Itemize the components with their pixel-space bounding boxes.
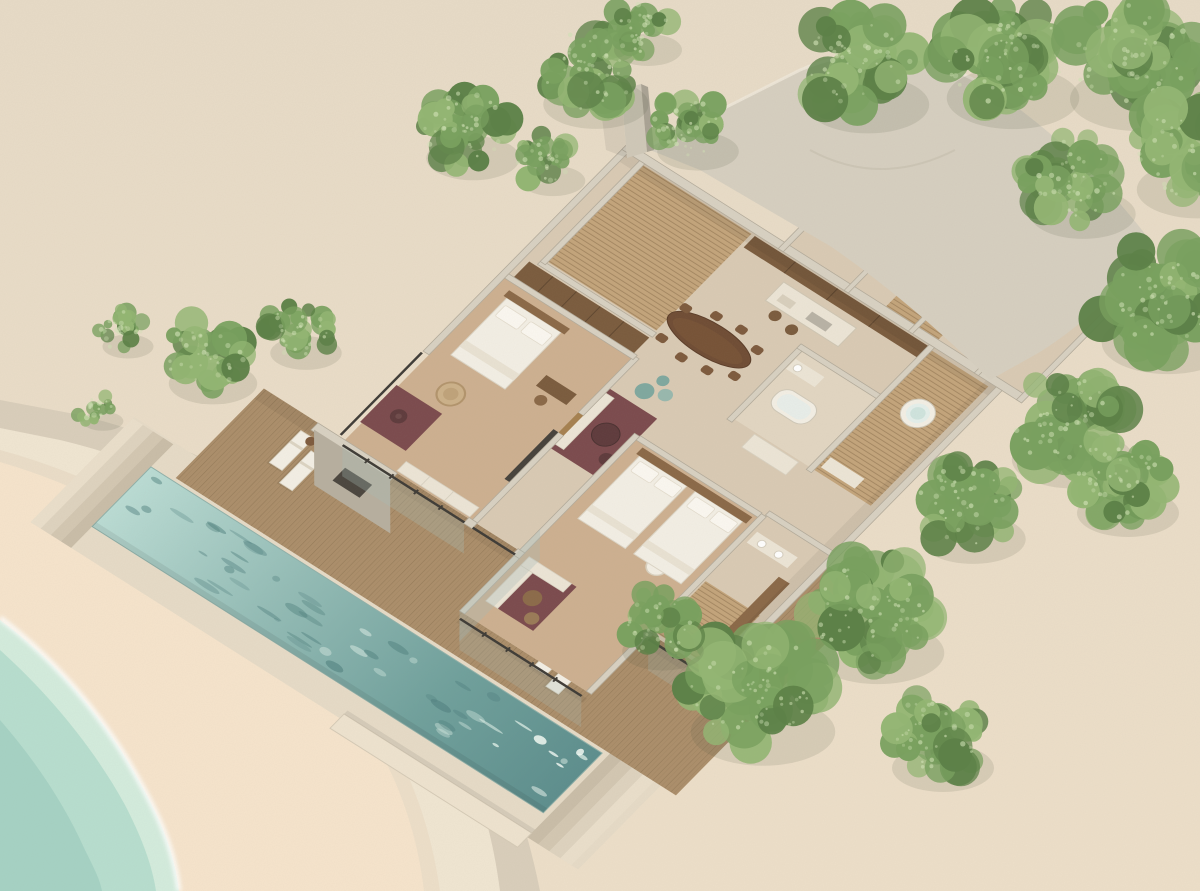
tree-speckle — [929, 764, 933, 768]
tree-speckle — [1121, 273, 1124, 276]
tree-speckle — [544, 177, 547, 180]
tree-speckle — [1068, 208, 1071, 211]
tree-speckle — [906, 598, 910, 602]
tree-speckle — [915, 703, 918, 706]
tree-speckle — [1156, 118, 1158, 120]
tree-speckle — [971, 471, 976, 476]
tree-speckle — [902, 734, 904, 736]
tree-foliage — [1103, 501, 1125, 523]
tree-speckle — [1053, 449, 1057, 453]
tree-speckle — [832, 50, 836, 54]
tree-speckle — [795, 698, 799, 702]
tree-speckle — [427, 142, 432, 147]
tree-speckle — [765, 708, 767, 710]
tree-speckle — [1036, 173, 1041, 178]
tree-speckle — [896, 738, 899, 741]
tree-speckle — [1005, 41, 1007, 43]
tree-speckle — [462, 124, 465, 127]
tree-speckle — [862, 92, 865, 95]
tree-speckle — [894, 623, 898, 627]
tree-speckle — [192, 335, 196, 339]
tree-speckle — [921, 761, 924, 764]
tree-speckle — [627, 624, 629, 626]
tree-speckle — [197, 353, 199, 355]
tree-speckle — [921, 714, 924, 717]
tree-foliage — [1149, 457, 1173, 481]
tree-speckle — [878, 49, 882, 53]
tree-speckle — [1143, 21, 1147, 25]
tree-speckle — [957, 512, 962, 517]
tree-speckle — [813, 40, 818, 45]
tree-speckle — [690, 104, 692, 106]
tree-speckle — [1083, 418, 1088, 423]
tree-speckle — [292, 331, 297, 336]
tree-speckle — [945, 535, 949, 539]
tree-speckle — [920, 734, 923, 737]
tree-speckle — [307, 319, 310, 322]
tree-speckle — [974, 512, 979, 517]
tree-speckle — [563, 69, 566, 72]
tree-speckle — [677, 641, 681, 645]
tree-speckle — [318, 317, 323, 322]
tree-speckle — [175, 331, 180, 336]
tree-speckle — [915, 723, 917, 725]
tree-speckle — [536, 143, 540, 147]
tree-speckle — [862, 62, 864, 64]
tree-speckle — [1009, 67, 1012, 70]
tree-speckle — [1131, 313, 1135, 317]
tree-speckle — [886, 54, 891, 59]
tree-speckle — [1075, 214, 1077, 216]
tree-speckle — [835, 53, 838, 56]
tree-foliage — [221, 354, 249, 382]
tree-speckle — [1026, 439, 1029, 442]
tree-speckle — [930, 702, 934, 706]
tree-speckle — [647, 629, 650, 632]
tree-speckle — [555, 159, 559, 163]
tree-speckle — [84, 415, 89, 420]
tree-speckle — [633, 631, 638, 636]
tree-foliage — [988, 494, 1012, 518]
tree-speckle — [1014, 428, 1019, 433]
tree-foliage — [568, 38, 598, 68]
tree-speckle — [876, 63, 878, 65]
tree-speckle — [1049, 173, 1054, 178]
tree-speckle — [690, 685, 693, 688]
tree-speckle — [1190, 144, 1194, 148]
tree-speckle — [1162, 119, 1166, 123]
tree-speckle — [1147, 466, 1151, 470]
tree-foliage — [1069, 210, 1090, 231]
tree-speckle — [547, 153, 551, 157]
scene-canvas — [0, 0, 1200, 891]
tree-speckle — [189, 365, 192, 368]
tree-speckle — [538, 151, 542, 155]
tree-speckle — [886, 50, 890, 54]
tree-speckle — [869, 619, 873, 623]
tree-speckle — [634, 47, 637, 50]
tree-speckle — [1042, 422, 1047, 427]
tree-foliage — [567, 71, 605, 109]
tree-speckle — [1065, 161, 1068, 164]
tree-speckle — [446, 95, 452, 101]
tree-speckle — [842, 568, 847, 573]
tree-speckle — [666, 126, 669, 129]
tree-speckle — [896, 79, 901, 84]
tree-speckle — [579, 60, 582, 63]
tree-speckle — [1156, 81, 1161, 86]
tree-speckle — [707, 121, 710, 124]
tree-speckle — [1143, 307, 1149, 313]
tree-speckle — [641, 637, 643, 639]
tree-speckle — [202, 350, 207, 355]
tree-speckle — [1177, 263, 1180, 266]
tree-speckle — [847, 62, 849, 64]
tree-speckle — [628, 620, 631, 623]
tree-speckle — [462, 130, 465, 133]
tree-speckle — [945, 517, 947, 519]
tree-speckle — [1058, 189, 1062, 193]
tree-speckle — [1094, 482, 1098, 486]
tree-speckle — [988, 27, 993, 32]
tree-speckle — [1063, 426, 1068, 431]
tree-speckle — [1172, 266, 1175, 269]
tree-speckle — [587, 63, 591, 67]
tree-speckle — [1103, 182, 1107, 186]
tree-speckle — [874, 49, 879, 54]
tree-speckle — [110, 405, 113, 408]
tree-speckle — [944, 735, 947, 738]
tree-speckle — [283, 340, 286, 343]
tree-speckle — [1108, 64, 1113, 69]
tree-speckle — [168, 360, 171, 363]
tree-speckle — [554, 178, 556, 180]
tree-speckle — [540, 139, 543, 142]
tree-speckle — [523, 157, 528, 162]
tree-foliage — [1117, 232, 1155, 270]
tree-foliage — [1113, 265, 1149, 301]
tree-speckle — [476, 155, 479, 158]
tree-speckle — [799, 696, 802, 699]
tree-speckle — [1080, 199, 1083, 202]
tree-speckle — [1163, 61, 1167, 65]
tree-speckle — [841, 45, 844, 48]
tree-speckle — [1032, 44, 1037, 49]
tree-speckle — [567, 47, 571, 51]
tree-speckle — [801, 710, 804, 713]
tree-speckle — [1083, 47, 1087, 51]
tree-speckle — [489, 101, 493, 105]
tree-speckle — [1113, 29, 1117, 33]
tree-speckle — [994, 499, 998, 503]
tree-speckle — [1038, 440, 1042, 444]
tree-speckle — [1087, 411, 1089, 413]
tree-speckle — [184, 343, 189, 348]
tree-speckle — [563, 169, 568, 174]
tree-speckle — [589, 40, 591, 42]
tree-speckle — [919, 490, 924, 495]
tree-speckle — [869, 605, 874, 610]
tree-speckle — [1074, 420, 1079, 425]
tree-speckle — [1160, 319, 1165, 324]
tree-speckle — [872, 635, 875, 638]
tree-speckle — [134, 330, 139, 335]
tree-speckle — [1065, 422, 1069, 426]
tree-speckle — [1069, 152, 1073, 156]
tree-speckle — [1033, 82, 1037, 86]
tree-speckle — [858, 609, 863, 614]
tree-speckle — [1170, 33, 1173, 36]
tree-speckle — [838, 629, 842, 633]
tree-speckle — [700, 101, 705, 106]
tree-speckle — [1157, 308, 1160, 311]
tree-speckle — [908, 746, 912, 750]
tree-speckle — [761, 697, 764, 700]
tree-speckle — [604, 39, 608, 43]
tree-speckle — [823, 77, 828, 82]
tree-speckle — [753, 657, 758, 662]
aerial-villa-rendering — [0, 0, 1200, 891]
tree-speckle — [119, 332, 123, 336]
tree-speckle — [711, 661, 716, 666]
tree-speckle — [863, 58, 868, 63]
tree-speckle — [1160, 295, 1164, 299]
tree-speckle — [829, 46, 833, 50]
tree-speckle — [447, 106, 451, 110]
tree-speckle — [474, 93, 480, 99]
tree-speckle — [1000, 40, 1002, 42]
tree-speckle — [684, 629, 686, 631]
tree-speckle — [877, 598, 879, 600]
tree-speckle — [122, 310, 126, 314]
tree-speckle — [646, 14, 649, 17]
tree-speckle — [953, 480, 956, 483]
tree-speckle — [1127, 307, 1132, 312]
tree-speckle — [1109, 475, 1112, 478]
tree-speckle — [829, 638, 833, 642]
tree-speckle — [741, 720, 743, 722]
tree-speckle — [656, 637, 661, 642]
tree-speckle — [1018, 87, 1023, 92]
tree-speckle — [1172, 144, 1177, 149]
tree-foliage — [1148, 286, 1191, 329]
tree-speckle — [91, 398, 94, 401]
tree-speckle — [1170, 126, 1173, 129]
tree-speckle — [225, 343, 230, 348]
tree-speckle — [918, 740, 922, 744]
tree-speckle — [563, 57, 566, 60]
tree-speckle — [444, 118, 447, 121]
tree-speckle — [922, 610, 925, 613]
tree-speckle — [1073, 174, 1077, 178]
tree-speckle — [213, 354, 218, 359]
tree-speckle — [456, 92, 460, 96]
tree-foliage — [1089, 150, 1108, 169]
tree-speckle — [694, 125, 699, 130]
tree-speckle — [1168, 281, 1171, 284]
tree-speckle — [658, 602, 661, 605]
tree-speckle — [1160, 79, 1162, 81]
tree-speckle — [1139, 286, 1141, 288]
tree-speckle — [871, 654, 874, 657]
tree-speckle — [1109, 170, 1114, 175]
tree-speckle — [965, 712, 970, 717]
tree-speckle — [103, 332, 105, 334]
tree-speckle — [918, 722, 921, 725]
tree-speckle — [598, 73, 601, 76]
tree-speckle — [1097, 471, 1100, 474]
tree-speckle — [474, 122, 479, 127]
tree-speckle — [591, 53, 595, 57]
tree-speckle — [584, 67, 589, 72]
tree-speckle — [939, 479, 943, 483]
tree-speckle — [956, 528, 960, 532]
tree-speckle — [617, 72, 620, 75]
tree-speckle — [1030, 96, 1033, 99]
tree-speckle — [1094, 448, 1097, 451]
tree-speckle — [1038, 423, 1042, 427]
tree-speckle — [954, 490, 958, 494]
tree-speckle — [694, 101, 698, 105]
tree-speckle — [216, 372, 221, 377]
tree-speckle — [890, 38, 893, 41]
tree-speckle — [847, 50, 850, 53]
tree-speckle — [842, 640, 845, 643]
tree-speckle — [716, 685, 721, 690]
tree-speckle — [848, 626, 850, 628]
tree-speckle — [636, 2, 641, 7]
tree-speckle — [930, 758, 935, 763]
tree-speckle — [1048, 439, 1053, 444]
tree-foliage — [540, 57, 566, 83]
tree-speckle — [1123, 56, 1127, 60]
tree-speckle — [1156, 321, 1159, 324]
tree-speckle — [604, 92, 608, 96]
tree-speckle — [952, 724, 957, 729]
tree-speckle — [1113, 18, 1118, 23]
tree-speckle — [661, 126, 666, 131]
tree-speckle — [1072, 396, 1074, 398]
tree-speckle — [830, 58, 835, 63]
tree-speckle — [667, 139, 671, 143]
tree-speckle — [470, 127, 474, 131]
tree-speckle — [695, 703, 698, 706]
tree-speckle — [1088, 481, 1092, 485]
tree-speckle — [1180, 120, 1182, 122]
tree-speckle — [1004, 49, 1008, 53]
tree-speckle — [468, 143, 471, 146]
tree-speckle — [1153, 284, 1157, 288]
tree-speckle — [934, 494, 939, 499]
tree-speckle — [1119, 302, 1124, 307]
tree-speckle — [1087, 67, 1092, 72]
tree-speckle — [1170, 320, 1173, 323]
tree-foliage — [703, 719, 729, 745]
tree-speckle — [1019, 74, 1023, 78]
tree-speckle — [635, 34, 637, 36]
tree-speckle — [1185, 334, 1189, 338]
tree-speckle — [741, 668, 743, 670]
tree-speckle — [758, 684, 762, 688]
tree-speckle — [905, 731, 909, 735]
tree-speckle — [1080, 391, 1083, 394]
tree-speckle — [238, 350, 243, 355]
tree-speckle — [1146, 455, 1151, 460]
tree-speckle — [1126, 3, 1131, 8]
tree-speckle — [832, 90, 836, 94]
tree-foliage — [640, 602, 664, 626]
tree-speckle — [1156, 172, 1160, 176]
tree-speckle — [1163, 186, 1167, 190]
tree-speckle — [118, 325, 123, 330]
tree-speckle — [958, 83, 962, 87]
tree-speckle — [954, 50, 957, 53]
tree-speckle — [708, 665, 712, 669]
tree-speckle — [1056, 176, 1061, 181]
tree-speckle — [1152, 462, 1157, 467]
tree-speckle — [1058, 426, 1063, 431]
tree-speckle — [879, 612, 882, 615]
tree-speckle — [749, 688, 751, 690]
tree-speckle — [827, 72, 830, 75]
tree-speckle — [538, 156, 543, 161]
tree-speckle — [906, 630, 909, 633]
tree-speckle — [1049, 422, 1053, 426]
tree-speckle — [805, 697, 808, 700]
tree-speckle — [1001, 88, 1005, 92]
tree-speckle — [452, 127, 457, 132]
tree-speckle — [657, 129, 661, 133]
tree-speckle — [1160, 276, 1163, 279]
tree-speckle — [917, 603, 921, 607]
tree-speckle — [944, 481, 946, 483]
tree-speckle — [947, 701, 950, 704]
tree-speckle — [108, 319, 112, 323]
tree-speckle — [572, 53, 577, 58]
tree-speckle — [765, 689, 768, 692]
tree-speckle — [914, 617, 919, 622]
tree-speckle — [975, 542, 977, 544]
tree-speckle — [545, 167, 548, 170]
tree-speckle — [1082, 160, 1086, 164]
tree-speckle — [1050, 27, 1053, 30]
tree-speckle — [1073, 190, 1076, 193]
tree-speckle — [1152, 158, 1155, 161]
tree-speckle — [551, 136, 555, 140]
tree-speckle — [999, 56, 1001, 58]
tree-speckle — [1175, 67, 1178, 70]
tree-speckle — [308, 343, 312, 347]
tree-speckle — [969, 503, 974, 508]
tree-foliage — [856, 584, 881, 609]
tree-speckle — [998, 23, 1003, 28]
tree-speckle — [240, 357, 245, 362]
tree-speckle — [939, 509, 944, 514]
tree-speckle — [1144, 75, 1148, 79]
tree-speckle — [1084, 414, 1087, 417]
tree-speckle — [1039, 413, 1043, 417]
tree-speckle — [866, 45, 871, 50]
tree-speckle — [952, 509, 954, 511]
tree-speckle — [583, 61, 585, 63]
tree-speckle — [1167, 314, 1172, 319]
tree-speckle — [1075, 191, 1080, 196]
tree-speckle — [1045, 412, 1049, 416]
tree-speckle — [848, 607, 852, 611]
tree-speckle — [607, 65, 611, 69]
tree-speckle — [826, 602, 829, 605]
tree-speckle — [892, 627, 897, 632]
